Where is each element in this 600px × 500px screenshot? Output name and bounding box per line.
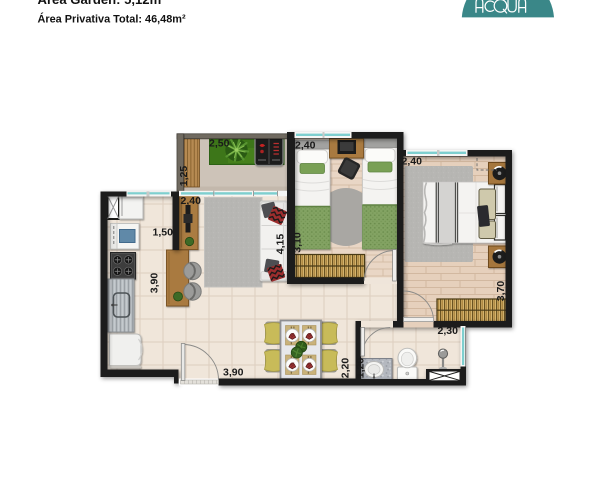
svg-text:Área Garden: 5,12m: Área Garden: 5,12m [38, 0, 162, 7]
svg-text:2,40: 2,40 [402, 156, 423, 168]
svg-text:1,50: 1,50 [153, 227, 174, 239]
svg-text:3,70: 3,70 [495, 281, 507, 302]
svg-text:2,50: 2,50 [209, 138, 230, 150]
svg-text:2,40: 2,40 [181, 195, 202, 207]
svg-text:2,20: 2,20 [340, 358, 352, 379]
svg-text:2,40: 2,40 [295, 140, 316, 152]
svg-text:Área Privativa Total: 46,48m²: Área Privativa Total: 46,48m² [38, 12, 186, 25]
svg-text:1,20: 1,20 [355, 358, 367, 379]
svg-text:2,30: 2,30 [438, 325, 459, 337]
svg-text:1,25: 1,25 [178, 166, 190, 187]
svg-text:4,15: 4,15 [275, 234, 287, 255]
svg-text:3,90: 3,90 [149, 273, 161, 294]
svg-text:3,10: 3,10 [291, 232, 303, 253]
svg-text:3,90: 3,90 [223, 367, 244, 379]
